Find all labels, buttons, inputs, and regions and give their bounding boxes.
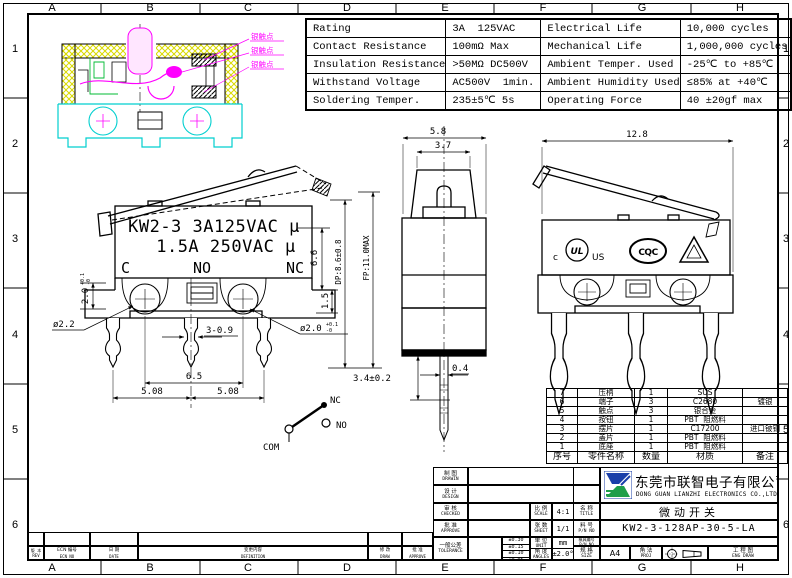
body-marking-line1: KW2-3 3A125VAC μ [128,217,300,237]
dim-5-08-left: 5.08 [141,387,163,397]
spec-label: Insulation Resistance [306,56,446,74]
spare-cell [573,467,600,503]
ul-c-label: c [553,253,558,263]
grid-number-left: 5 [7,424,23,438]
company-name-cn: 东莞市联智电子有限公司 [635,471,778,491]
scale-label: 比 例 SCALE [530,503,552,520]
spec-label: Mechanical Life [541,38,680,56]
size-en: SIZE [581,554,592,559]
dim-slot-tol-dn: -0 [86,279,92,285]
spec-label: Ambient Temper. Used [541,56,680,74]
part-qty: 1 [635,443,668,452]
approve-en: APPROVE [441,529,460,534]
pn-en: P/N NO [578,529,594,534]
approve-label: 批 准 APPROVE [433,520,468,537]
terminal-nc-label: NC [286,259,304,277]
grid-letter-bottom: D [337,562,357,574]
dim-5-08-right: 5.08 [217,387,239,397]
schematic-nc-label: NC [330,396,341,406]
size-label: 规 格 SIZE [573,546,600,560]
product-title: 微动开关 [600,503,778,520]
grid-number-left: 2 [7,138,23,152]
part-remark [743,407,788,416]
side-view: KW2-3 3A125VAC μ 1.5A 250VAC μ C NO NC [52,166,382,408]
eng-draw-en: ENG DRAW [732,554,754,559]
table-row: Rating 3A 125VAC Electrical Life 10,000 … [306,19,791,38]
tolerance-label: 一般公差 TOLERANCE [433,537,468,560]
section-view: 银触点 银触点 银触点 [58,24,284,147]
spec-value: ≤85% at +40℃ [680,74,791,92]
terminal-c-label: C [121,259,130,277]
size-value: A4 [600,546,630,560]
spec-label: Ambient Humidity Used [541,74,680,92]
proj-en: PROJ [641,554,652,559]
table-row: Withstand Voltage AC500V 1min. Ambient H… [306,74,791,92]
design-label: 设 计 DESIGN [433,485,468,503]
table-row: 6 端子 3 C2680 镀银 [547,398,788,407]
dim-6-6: 6.6 [310,250,320,266]
grid-letter-bottom: F [533,562,553,574]
table-row: 1 底座 1 PBT 阻燃料 [547,443,788,452]
definition-en: DEFINITION [241,554,265,559]
grid-number-right: 2 [778,138,792,152]
ecn-entry-cell [44,532,90,546]
circuit-schematic: NC NO COM [263,396,347,453]
definition-label: 变更内容 DEFINITION [138,546,368,560]
table-row: 2 盖片 1 PBT 阻燃料 [547,434,788,443]
tolerance-values: ±0.30 ±0.15 ±0.10 ±0.05 [502,537,530,560]
grid-letter-bottom: A [42,562,62,574]
angles-en: ANGLES [533,555,549,560]
grid-letter-bottom: G [632,562,652,574]
grid-letter-top: C [238,2,258,14]
table-row: Insulation Resistance >50MΩ DC500V Ambie… [306,56,791,74]
column-header: 材质 [668,452,743,464]
engineering-drawing-page: 银触点 银触点 银触点 [0,0,792,578]
grid-letter-top: F [533,2,553,14]
spec-value: 3A 125VAC [446,19,541,38]
schematic-com-label: COM [263,443,280,453]
sheet-en: SHEET [534,529,548,534]
part-remark [743,434,788,443]
modify-en: DRAW [380,554,390,559]
dim-0-4: 0.4 [452,364,468,374]
spec-label: Rating [306,19,446,38]
silver-contact-label: 银触点 [251,31,274,41]
title-block: 制 图 DRAWIN 设 计 DESIGN 审 核 CHECKED 批 准 AP… [433,467,778,560]
tolerance-range-cell [468,537,502,560]
rear-view: 12.8 c UL US CQC [533,130,733,413]
grid-letter-top: B [140,2,160,14]
tolerance-value: ±0.15 [503,544,529,551]
dim-dp: DP:8.6±0.8 [334,239,343,285]
angles-label: 角 度 ANGLES [530,548,552,560]
spec-label: Contact Resistance [306,38,446,56]
dim-fp: FP:11.0MAX [362,235,371,281]
spec-table: Rating 3A 125VAC Electrical Life 10,000 … [305,18,792,111]
grid-letter-bottom: E [435,562,455,574]
rev-approve-en: APPROVE [409,554,426,559]
checked-signature-cell [468,503,530,520]
ecn-en: ECN NO [60,554,74,559]
ecn-label: ECN 编号 ECN NO [44,546,90,560]
proj-label: 角 法 PROJ [630,546,662,560]
tolerance-value: ±0.05 [503,557,529,560]
table-row: Soldering Temper. 235±5℃ 5s Operating Fo… [306,92,791,111]
drawn-label: 制 图 DRAWIN [433,467,468,485]
grid-letter-bottom: C [238,562,258,574]
grid-letter-bottom: B [140,562,160,574]
approve-entry-cell [402,532,433,546]
sheet-label: 张 数 SHEET [530,520,552,537]
spec-value: 235±5℃ 5s [446,92,541,111]
spec-value: AC500V 1min. [446,74,541,92]
spec-value: >50MΩ DC500V [446,56,541,74]
dim-3-7: 3.7 [435,141,451,151]
ul-logo-text: UL [570,247,583,257]
company-logo-icon [604,471,632,499]
table-row: 3 摆片 1 C17200 进口铍铜 [547,425,788,434]
spec-value: 40 ±20gf max [680,92,791,111]
rev-en: REV [32,553,39,558]
dim-6-5: 6.5 [186,372,202,382]
checked-en: CHECKED [441,512,460,517]
silver-contact-label: 银触点 [251,59,274,69]
rev-entry-cell [28,532,44,546]
dim-hole-right-tol-dn: -0 [326,328,332,334]
column-header: 序号 [547,452,578,464]
part-material: PBT 阻燃料 [668,443,743,452]
table-row: Contact Resistance 100mΩ Max Mechanical … [306,38,791,56]
checked-label: 审 核 CHECKED [433,503,468,520]
title-en: TITLE [580,512,594,517]
spec-label: Withstand Voltage [306,74,446,92]
spec-value: 100mΩ Max [446,38,541,56]
drawn-en: DRAWIN [442,477,458,482]
scale-en: SCALE [534,512,548,517]
spec-value: 1,000,000 cycles [680,38,791,56]
dim-slot: 2.0 [81,288,91,304]
draw-entry-cell [368,532,402,546]
schematic-no-label: NO [336,421,347,431]
rev-approve-label: 批 准 APPROVE [402,546,433,560]
title-label: 名 称 TITLE [573,503,600,520]
table-row: 7 压柄 1 SUS [547,389,788,398]
grid-letter-top: G [632,2,652,14]
dim-hole-right: ø2.0 [300,324,322,334]
spec-label: Soldering Temper. [306,92,446,111]
grid-letter-top: A [42,2,62,14]
dim-pins: 3-0.9 [206,326,233,336]
grid-letter-top: H [730,2,750,14]
grid-number-left: 4 [7,329,23,343]
part-remark [743,443,788,452]
parts-table-header-row: 序号 零件名称 数量 材质 备注 [547,452,788,464]
date-label: 日 期 DATE [90,546,138,560]
grid-number-left: 6 [7,519,23,533]
company-block: 东莞市联智电子有限公司 DONG GUAN LIANZHI ELECTRONIC… [600,467,778,503]
column-header: 备注 [743,452,788,464]
dim-1-5: 1.5 [321,293,331,309]
grid-letter-top: E [435,2,455,14]
projection-symbol-cell [662,546,708,560]
body-marking-line2: 1.5A 250VAC μ [156,237,296,257]
column-header: 零件名称 [578,452,635,464]
ul-us-label: US [592,253,605,263]
dim-hole-left: ø2.2 [53,320,75,330]
part-remark: 镀银 [743,398,788,407]
grid-number-right: 4 [778,329,792,343]
eng-draw-label: 工 程 图 ENG DRAW [708,546,778,560]
mold-number [600,537,778,546]
spec-value: -25℃ to +85℃ [680,56,791,74]
part-name: 底座 [578,443,635,452]
triangle-cert-icon [680,237,708,262]
modify-label: 修 改 DRAW [368,546,402,560]
column-header: 数量 [635,452,668,464]
parts-table: 7 压柄 1 SUS 6 端子 3 C2680 镀银 5 触点 3 银合金 4 … [546,388,788,464]
spec-label: Electrical Life [541,19,680,38]
table-row: 5 触点 3 银合金 [547,407,788,416]
spec-label: Operating Force [541,92,680,111]
part-number: KW2-3-128AP-30-5-LA [600,520,778,537]
definition-entry-cell [138,532,368,546]
part-no: 1 [547,443,578,452]
dim-12-8: 12.8 [626,130,648,140]
dim-5-8: 5.8 [430,127,446,137]
pn-label: 料 号 P/N NO [573,520,600,537]
mold-label: 模具编号 P/N NO [573,537,600,546]
part-remark: 进口铍铜 [743,425,788,434]
grid-number-right: 6 [778,519,792,533]
silver-contact-label: 银触点 [251,45,274,55]
grid-number-left: 1 [7,43,23,57]
dim-3-4: 3.4±0.2 [353,374,391,384]
third-angle-projection-icon [663,547,707,559]
design-en: DESIGN [442,495,458,500]
rev-label: 版 本 REV [28,546,44,560]
grid-letter-bottom: H [730,562,750,574]
grid-number-left: 3 [7,233,23,247]
terminal-no-label: NO [193,259,211,277]
grid-letter-top: D [337,2,357,14]
cqc-logo-text: CQC [638,248,658,258]
tolerance-en: TOLERANCE [438,549,462,554]
grid-number-right: 3 [778,233,792,247]
company-name-en: DONG GUAN LIANZHI ELECTRONICS CO.,LTD. [636,491,778,498]
revision-table: 版 本 REV ECN 编号 ECN NO 日 期 DATE 变更内容 DEFI… [28,532,433,560]
spec-value: 10,000 cycles [680,19,791,38]
sheet-value: 1/1 [552,520,574,537]
approve-signature-cell [468,520,530,537]
date-en: DATE [109,554,119,559]
angles-value: ±2.0° [552,548,574,560]
tolerance-value: ±0.10 [503,550,529,557]
date-entry-cell [90,532,138,546]
scale-value: 4:1 [552,503,574,520]
